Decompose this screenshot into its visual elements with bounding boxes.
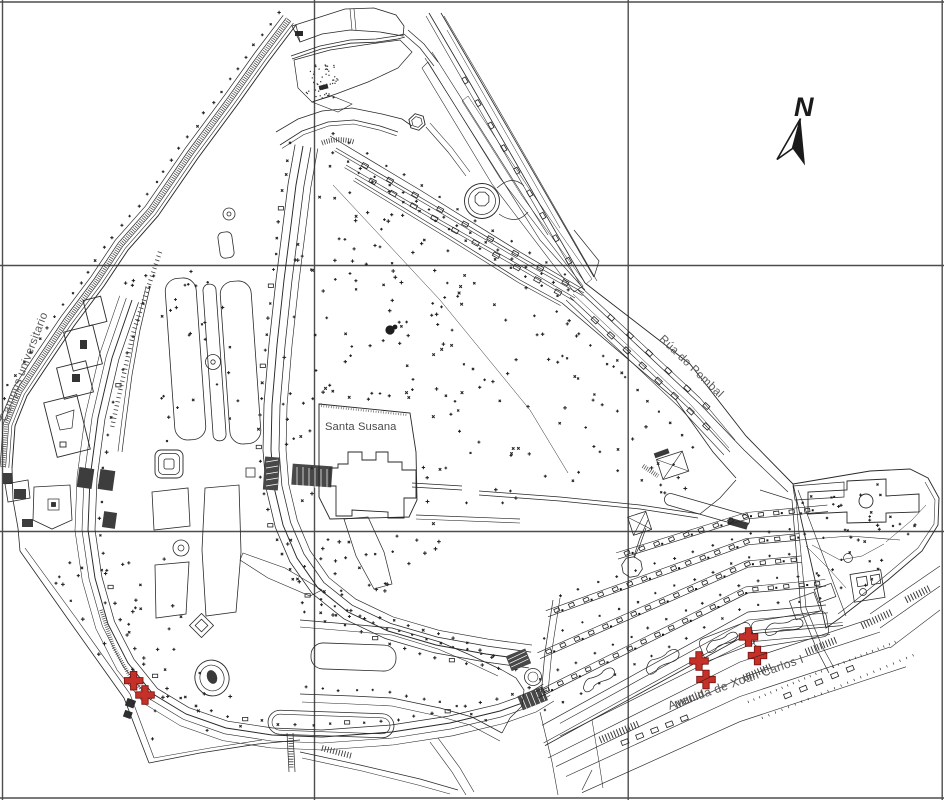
- svg-text:N: N: [794, 92, 814, 122]
- svg-text:Santa Susana: Santa Susana: [325, 421, 397, 433]
